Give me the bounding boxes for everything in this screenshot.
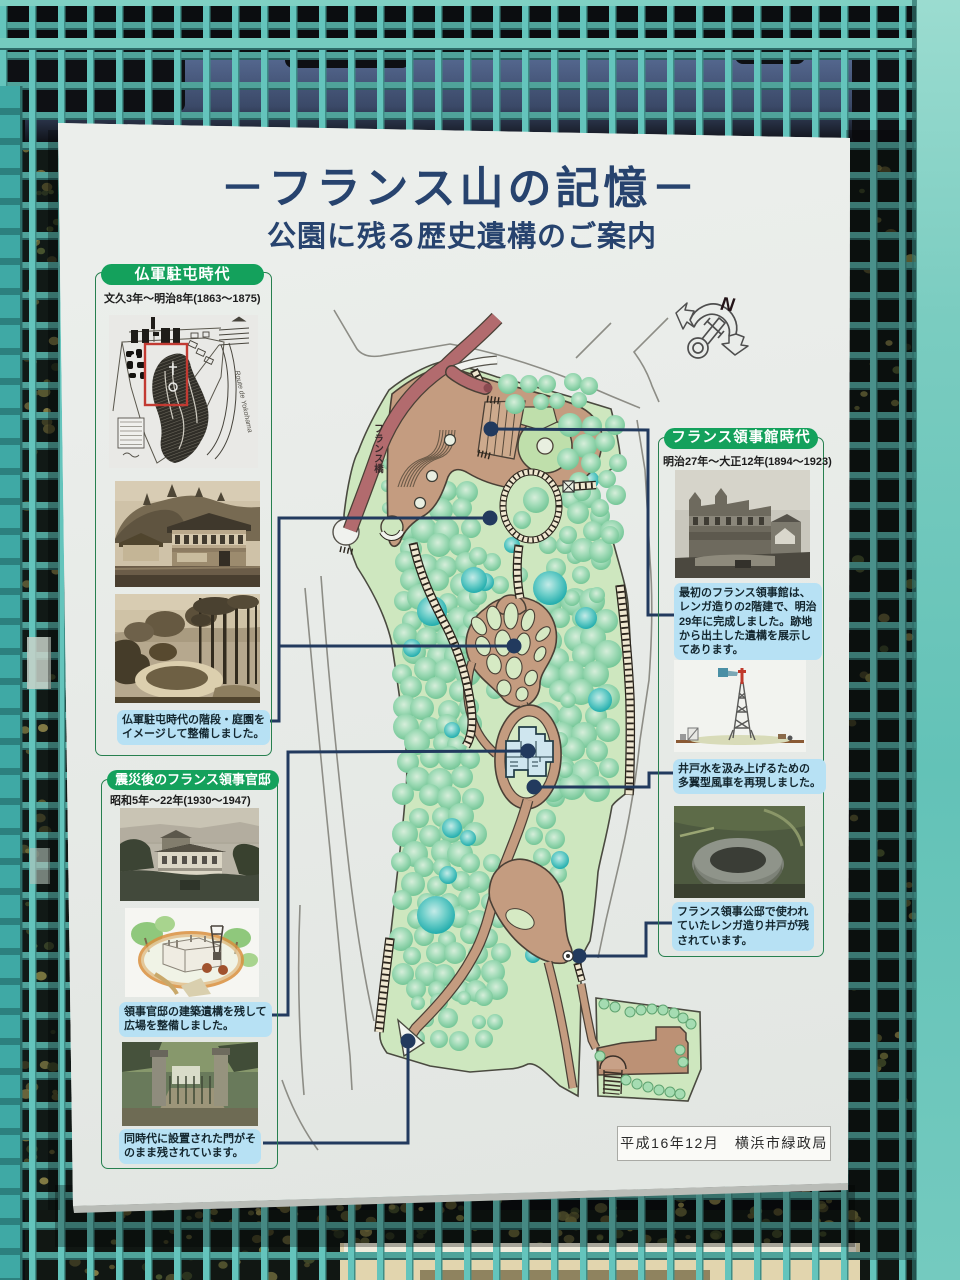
svg-text:N: N	[719, 294, 737, 317]
svg-text:橋: 橋	[374, 463, 384, 475]
